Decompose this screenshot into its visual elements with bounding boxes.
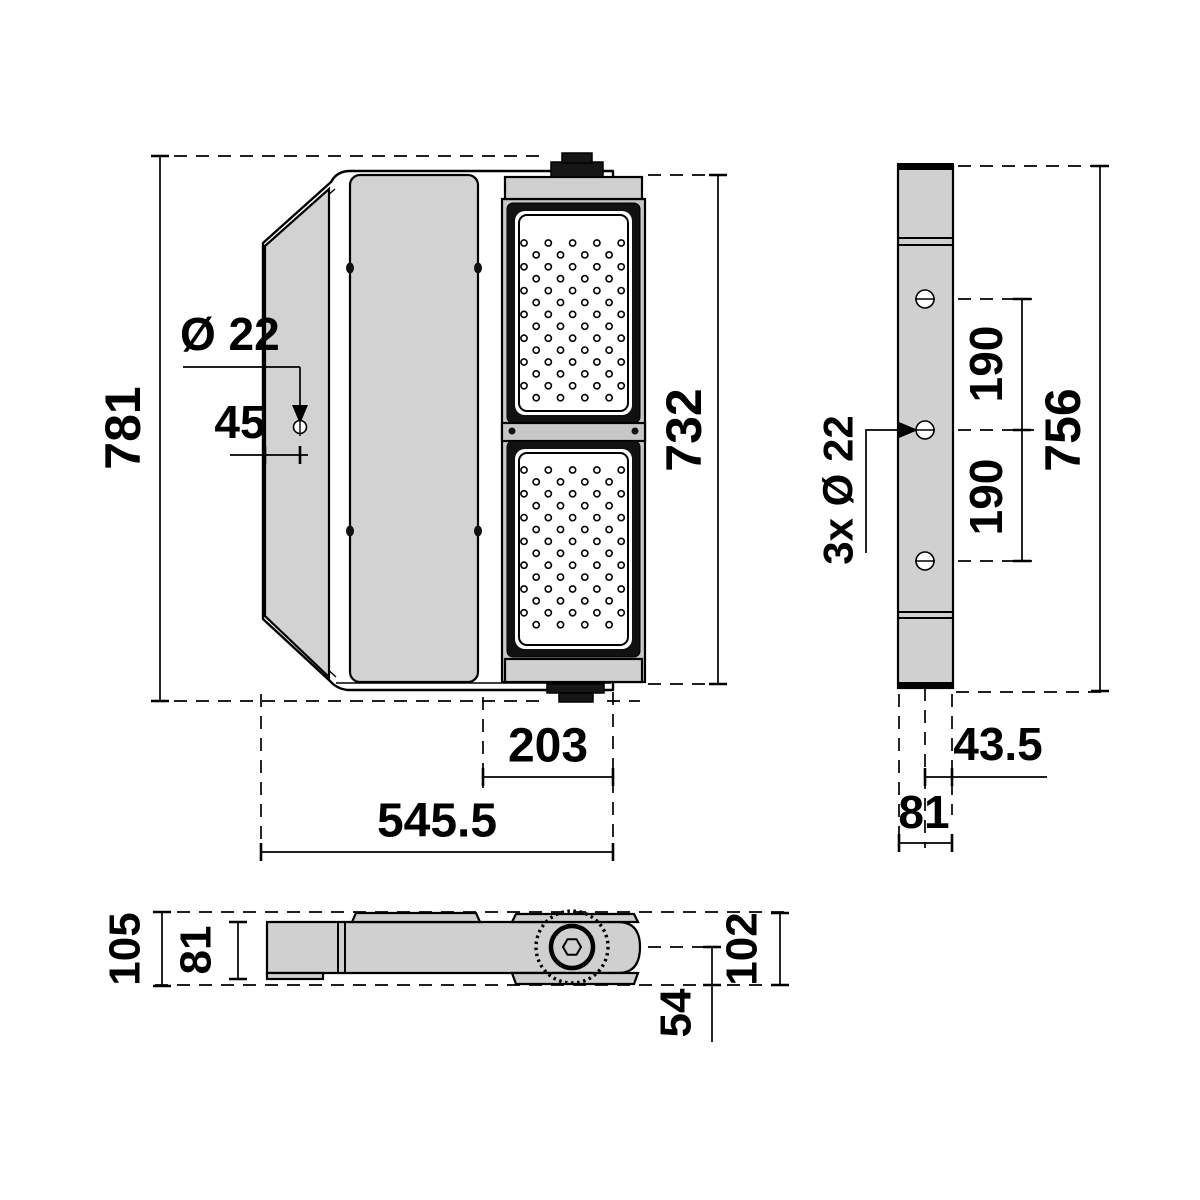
dim-side-height: 756	[1035, 388, 1091, 471]
side-bottom-edge	[897, 682, 954, 689]
bracket-lower-plate	[512, 973, 638, 984]
dim-side-hole-spacing-lower: 190	[960, 459, 1012, 536]
side-view: 3x Ø 22 190 190 756 43.5	[815, 163, 1111, 852]
dim-front-module-width: 203	[508, 720, 588, 773]
bottom-left-step	[267, 973, 323, 979]
bottom-dim-bracket-height: 102	[718, 912, 790, 985]
hex-socket-bolt	[563, 939, 581, 955]
dim-front-hole-diameter: Ø 22	[180, 308, 280, 360]
bottom-top-plate	[352, 913, 480, 922]
front-dim-module-width: 203	[483, 720, 613, 787]
front-view: Ø 22 45 781 732 203	[95, 153, 728, 862]
dim-front-height: 781	[95, 386, 151, 469]
dim-front-width: 545.5	[377, 795, 497, 848]
housing-center-body	[350, 175, 478, 682]
module-top-cap	[505, 177, 642, 199]
dim-front-module-height: 732	[656, 388, 712, 471]
module-divider	[502, 423, 645, 441]
front-dim-height: 781	[95, 156, 169, 701]
bottom-dim-overall-depth: 105	[101, 912, 172, 986]
dim-side-hole-spacing-upper: 190	[960, 326, 1012, 403]
side-dim-center-to-edge: 43.5	[925, 718, 1047, 786]
drawing-canvas: Ø 22 45 781 732 203	[0, 0, 1200, 1200]
dim-bottom-bracket-height: 102	[718, 912, 767, 985]
bottom-dim-pivot-to-edge: 54	[652, 947, 722, 1042]
bracket-upper-plate	[512, 914, 638, 922]
dim-bottom-overall-depth: 105	[101, 912, 150, 985]
bottom-view: 105 81 102 54	[101, 911, 791, 1042]
led-module	[502, 153, 645, 702]
dim-side-holes-note: 3x Ø 22	[815, 415, 862, 564]
side-top-edge	[897, 163, 954, 170]
front-dim-module-height: 732	[656, 175, 727, 684]
top-mounting-tab	[551, 153, 603, 177]
dim-bottom-body-depth: 81	[172, 926, 221, 975]
led-panel-2	[515, 449, 632, 649]
dim-side-depth: 81	[898, 786, 949, 838]
dim-side-center-to-edge: 43.5	[953, 718, 1043, 770]
front-dim-width: 545.5	[261, 795, 613, 862]
technical-drawing: Ø 22 45 781 732 203	[0, 0, 1200, 1200]
bottom-mounting-tab	[547, 684, 604, 702]
side-dim-height: 756	[1035, 166, 1109, 691]
bottom-dim-body-depth: 81	[172, 922, 248, 979]
dim-front-hole-offset: 45	[214, 396, 265, 448]
module-bottom-cap	[505, 659, 642, 682]
dim-bottom-pivot-to-edge: 54	[652, 988, 701, 1037]
